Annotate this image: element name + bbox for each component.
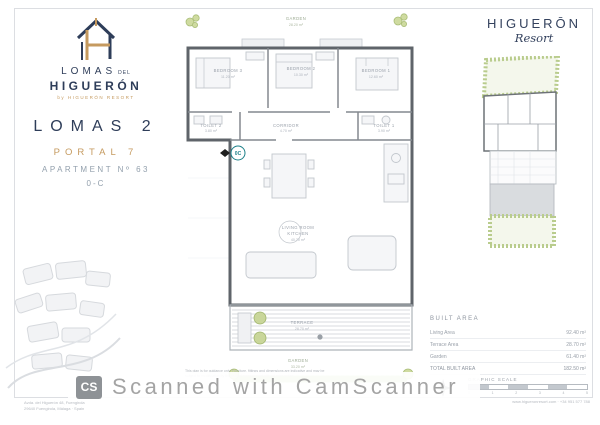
room-label-bedroom1: BEDROOM 1 — [362, 68, 391, 73]
project-title: LOMAS 2 — [20, 118, 172, 136]
room-area-terrace: 28.70 m² — [295, 327, 310, 331]
resort-logo-sub: Resort — [478, 31, 590, 45]
room-area-garden-top: 28.20 m² — [289, 23, 304, 27]
scale-tick: 3 — [539, 391, 541, 395]
footer-address: Avda. del Higuerón 48, Fuengirola 29640 … — [24, 400, 85, 411]
camscanner-text: Scanned with CamScanner — [112, 374, 459, 400]
brand-name-line2: HIGUERÓN — [20, 79, 172, 93]
row-value: 92.40 m² — [566, 330, 586, 336]
room-label-garden-top: GARDEN — [286, 16, 306, 21]
table-row-terrace: Terrace Area 28.70 m² — [430, 339, 586, 351]
portal-label: PORTAL 7 — [20, 147, 172, 158]
table-row-living: Living Area 92.40 m² — [430, 327, 586, 339]
scale-tick: 1 — [492, 391, 494, 395]
graphic-scale-bar — [468, 384, 588, 390]
room-area-bedroom1: 12.60 m² — [369, 75, 384, 79]
room-label-terrace: TERRACE — [291, 320, 314, 325]
scale-tick: 2 — [515, 391, 517, 395]
resort-logo: HIGUERŌN Resort — [478, 16, 590, 45]
resort-logo-name: HIGUERŌN — [478, 16, 590, 31]
graphic-scale: GRAPHIC SCALE 0 1 2 3 4 5 — [468, 377, 588, 395]
footer-contact: www.higueronresort.com · +34 951 577 788 — [512, 399, 590, 404]
mini-plot-plan — [468, 56, 572, 252]
graphic-scale-ticks: 0 1 2 3 4 5 — [468, 391, 588, 395]
lomas-house-logo-icon — [72, 16, 120, 62]
row-value: 28.70 m² — [566, 342, 586, 348]
brand-byline: by HIGUERÓN RESORT — [20, 95, 172, 100]
terrace-furniture — [238, 312, 323, 344]
row-label: Terrace Area — [430, 342, 458, 348]
row-value: 61.40 m² — [566, 354, 586, 360]
room-area-corridor: 4.70 m² — [280, 129, 293, 133]
room-area-toilet2: 3.80 m² — [205, 129, 218, 133]
main-floorplan: GARDEN 28.20 m² BEDROOM 3 11.20 m² BEDRO… — [180, 8, 425, 390]
room-label-living: LIVING ROOM — [282, 225, 314, 230]
row-value: 182.50 m² — [563, 366, 586, 372]
scale-tick: 5 — [586, 391, 588, 395]
room-area-living: 40.70 m² — [291, 238, 306, 242]
built-area-header: BUILT AREA — [430, 316, 586, 322]
row-label: Garden — [430, 354, 447, 360]
room-area-toilet1: 3.90 m² — [378, 129, 391, 133]
table-row-garden: Garden 61.40 m² — [430, 351, 586, 363]
built-area-table: BUILT AREA Living Area 92.40 m² Terrace … — [430, 316, 586, 375]
apartment-marker-label: 0C — [235, 151, 242, 157]
room-label-bedroom2: BEDROOM 2 — [287, 66, 316, 71]
row-label: Living Area — [430, 330, 455, 336]
scale-tick: 4 — [562, 391, 564, 395]
brand-name-line1: LOMASDEL — [20, 66, 172, 77]
apartment-label: APARTMENT Nº 63 — [20, 165, 172, 174]
room-label-corridor: CORRIDOR — [273, 123, 299, 128]
unit-label: 0-C — [20, 179, 172, 188]
graphic-scale-label: GRAPHIC SCALE — [468, 377, 588, 382]
camscanner-watermark: CS Scanned with CamScanner — [68, 372, 480, 402]
brand-block: LOMASDEL HIGUERÓN by HIGUERÓN RESORT — [20, 16, 172, 100]
room-label-kitchen: KITCHEN — [287, 231, 308, 236]
room-area-bedroom2: 10.30 m² — [294, 73, 309, 77]
room-area-bedroom3: 11.20 m² — [221, 75, 236, 79]
room-label-bedroom3: BEDROOM 3 — [214, 68, 243, 73]
room-label-garden-bottom: GARDEN — [288, 358, 308, 363]
room-label-toilet2: TOILET 2 — [200, 123, 221, 128]
room-label-toilet1: TOILET 1 — [373, 123, 394, 128]
camscanner-badge-icon: CS — [76, 376, 102, 399]
floorplan-sheet: LOMASDEL HIGUERÓN by HIGUERÓN RESORT LOM… — [0, 0, 600, 425]
